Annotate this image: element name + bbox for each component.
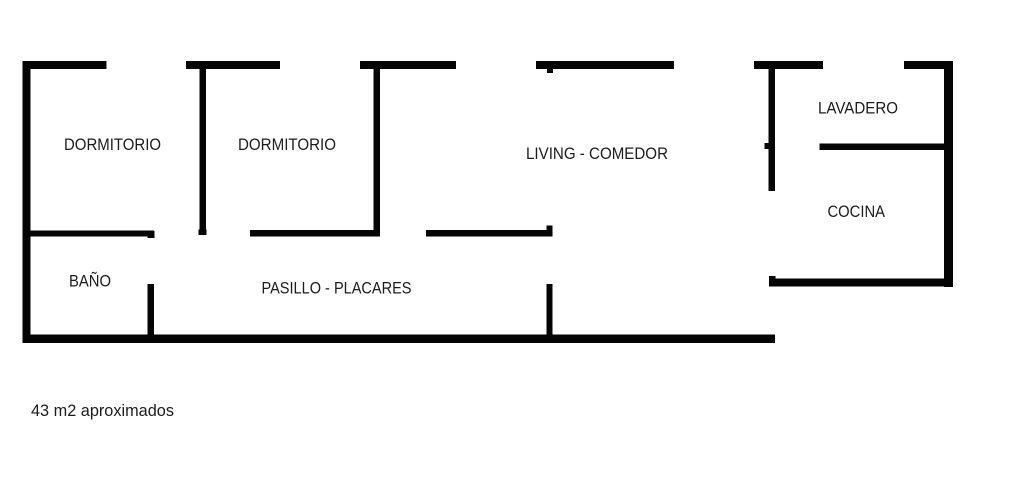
svg-text:DORMITORIO: DORMITORIO [238,136,336,154]
svg-text:COCINA: COCINA [828,203,886,221]
svg-text:PASILLO - PLACARES: PASILLO - PLACARES [262,280,412,298]
svg-text:BAÑO: BAÑO [69,271,111,291]
svg-text:43 m2 aproximados: 43 m2 aproximados [31,402,174,420]
svg-text:LIVING - COMEDOR: LIVING - COMEDOR [526,145,668,163]
svg-text:DORMITORIO: DORMITORIO [64,136,161,154]
svg-text:LAVADERO: LAVADERO [818,100,898,118]
